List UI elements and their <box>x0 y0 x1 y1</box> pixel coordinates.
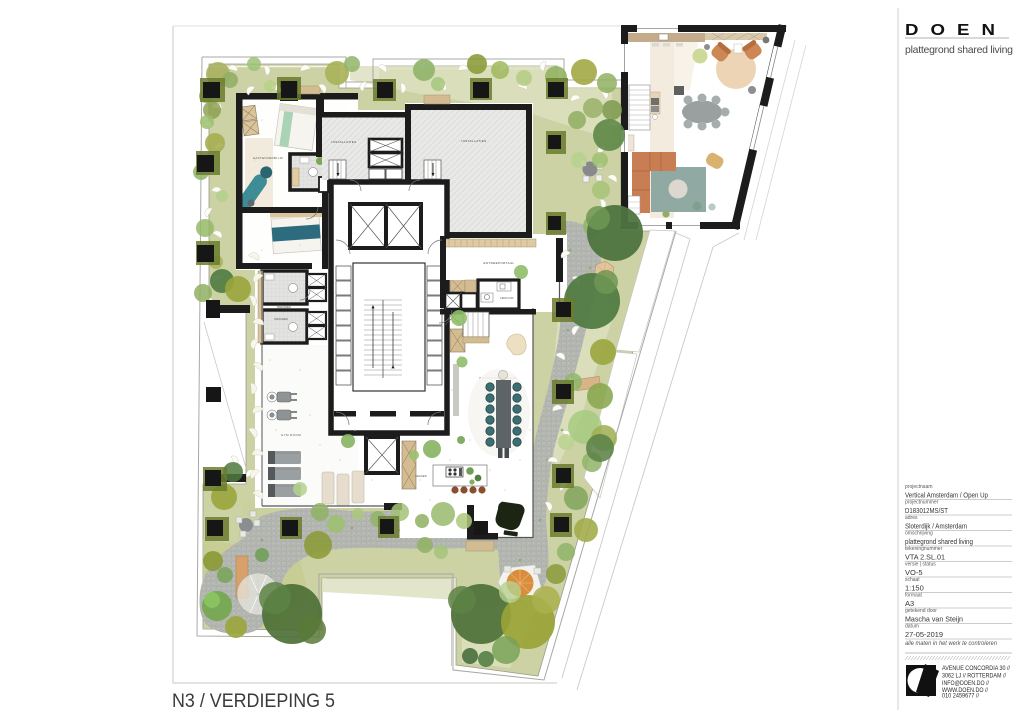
svg-text:Mascha van Steijn: Mascha van Steijn <box>905 615 963 624</box>
svg-text:27-05-2019: 27-05-2019 <box>905 630 943 639</box>
svg-text:D183012MS/ST: D183012MS/ST <box>905 506 948 515</box>
svg-text:Vertical Amsterdam / Open Up: Vertical Amsterdam / Open Up <box>905 491 988 500</box>
svg-text:VTA 2.SL.01: VTA 2.SL.01 <box>905 553 945 562</box>
svg-text:tekeningnummer: tekeningnummer <box>905 546 943 552</box>
svg-text:3062 LJ // ROTTERDAM //: 3062 LJ // ROTTERDAM // <box>942 674 1006 680</box>
svg-text:plattegrond shared living: plattegrond shared living <box>905 537 973 546</box>
svg-text:formaat: formaat <box>905 593 923 599</box>
svg-text:INFO@DOEN.DO //: INFO@DOEN.DO // <box>942 681 989 687</box>
svg-text:projectnaam: projectnaam <box>905 484 933 490</box>
svg-text:getekend door: getekend door <box>905 608 937 614</box>
svg-text:AVENUE CONCORDIA 30 //: AVENUE CONCORDIA 30 // <box>942 666 1010 672</box>
svg-text:Sloterdijk / Amsterdam: Sloterdijk / Amsterdam <box>905 522 967 531</box>
svg-text:VO-5: VO-5 <box>905 568 923 577</box>
svg-text:DOEN: DOEN <box>905 22 1007 39</box>
svg-text:plattegrond shared living: plattegrond shared living <box>905 44 1013 56</box>
svg-text:N3 / VERDIEPING 5: N3 / VERDIEPING 5 <box>172 691 335 712</box>
svg-text:A3: A3 <box>905 599 914 608</box>
svg-text:alle maten in het werk te cont: alle maten in het werk te controleren <box>905 641 998 647</box>
svg-text:1:150: 1:150 <box>905 584 924 593</box>
svg-text:010 2459677 //: 010 2459677 // <box>942 694 979 700</box>
svg-text:schaal: schaal <box>905 577 919 583</box>
svg-text:projectnummer: projectnummer <box>905 500 939 506</box>
svg-text:adres: adres <box>905 515 918 521</box>
svg-text:omschrijving: omschrijving <box>905 531 933 537</box>
svg-text:datum: datum <box>905 624 919 630</box>
svg-text:versie | status: versie | status <box>905 562 936 568</box>
